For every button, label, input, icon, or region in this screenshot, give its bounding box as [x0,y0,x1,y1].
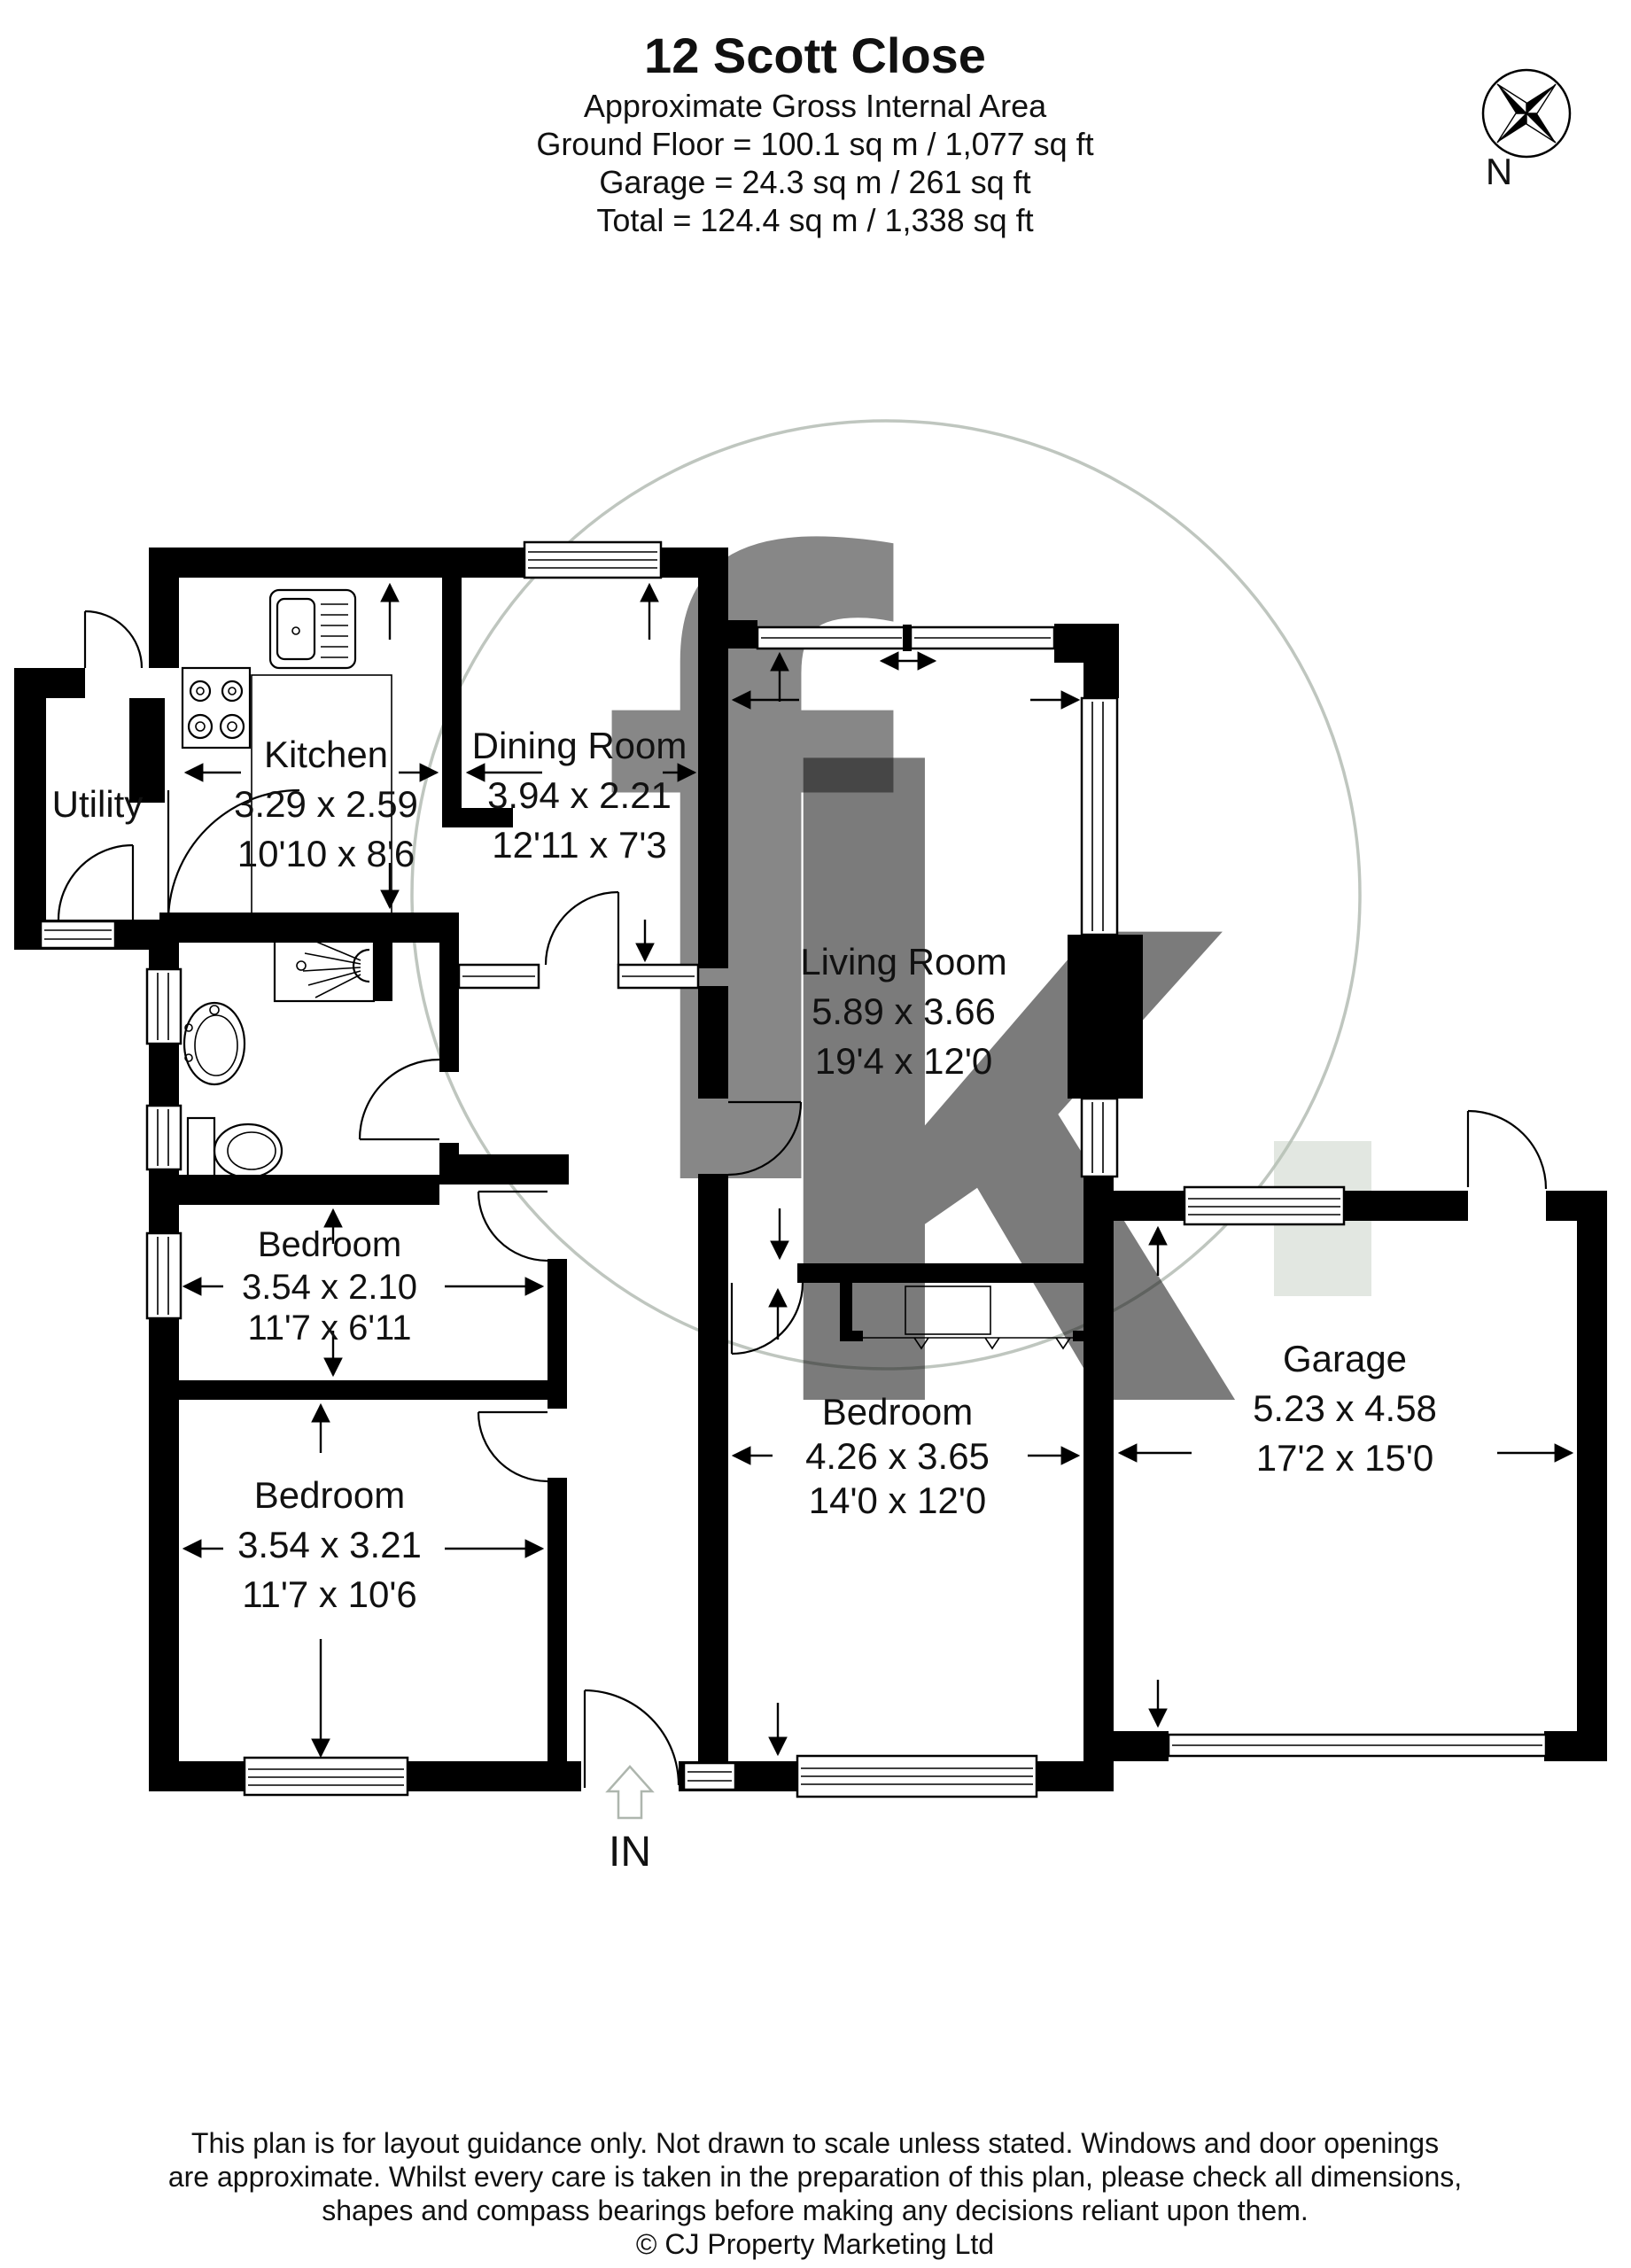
label-bedroom1-imperial: 11'7 x 6'11 [247,1309,411,1348]
compass-north-label: N [1486,151,1512,192]
label-bedroom3-imperial: 14'0 x 12'0 [809,1480,987,1521]
door-bathroom [360,1060,439,1139]
label-bedroom3: Bedroom [822,1391,973,1433]
door-bedroom2 [478,1412,548,1481]
disclaimer-line-2: are approximate. Whilst every care is ta… [168,2161,1462,2193]
disclaimer-line-3: shapes and compass bearings before makin… [322,2194,1309,2226]
window-bathroom-1 [147,969,181,1044]
label-garage-imperial: 17'2 x 15'0 [1256,1437,1434,1479]
toilet [188,1118,282,1184]
page-title: 12 Scott Close [644,27,986,83]
glazed-panel-right [618,965,698,988]
label-garage-metric: 5.23 x 4.58 [1253,1387,1437,1429]
label-bedroom1: Bedroom [258,1225,401,1264]
compass-star [1497,84,1556,143]
label-garage: Garage [1283,1338,1407,1379]
label-kitchen-metric: 3.29 x 2.59 [234,783,418,825]
kitchen-sink [270,590,355,668]
entrance-arrow-icon [608,1767,652,1818]
door-utility-internal [58,845,133,920]
kitchen-hob [183,668,250,748]
label-bedroom1-metric: 3.54 x 2.10 [242,1268,417,1307]
footer: This plan is for layout guidance only. N… [168,2127,1462,2260]
header-subtitle: Approximate Gross Internal Area [584,88,1047,124]
floorplan-page: f k 12 Scott Close Approximate Gross Int… [0,0,1631,2268]
compass-rose: N [1483,70,1570,192]
label-dining-metric: 3.94 x 2.21 [487,774,672,816]
door-bedroom1 [478,1192,548,1261]
window-bedroom2 [245,1758,408,1795]
label-kitchen: Kitchen [264,734,388,775]
entrance: IN [608,1767,652,1876]
label-dining-imperial: 12'11 x 7'3 [492,824,666,866]
label-bedroom3-metric: 4.26 x 3.65 [805,1435,990,1477]
window-living-right-lower [1082,1099,1117,1177]
window-bedroom3-bay [797,1756,1037,1797]
window-hall [684,1763,735,1790]
header: 12 Scott Close Approximate Gross Interna… [536,27,1093,238]
label-living: Living Room [800,941,1006,983]
entrance-label: IN [609,1829,651,1876]
label-kitchen-imperial: 10'10 x 8'6 [237,833,416,874]
label-bedroom2-imperial: 11'7 x 10'6 [242,1573,416,1615]
label-dining: Dining Room [472,725,687,766]
disclaimer-line-1: This plan is for layout guidance only. N… [191,2127,1439,2159]
area-garage: Garage = 24.3 sq m / 261 sq ft [599,164,1030,200]
door-garage-side [1468,1111,1546,1189]
garage-door [1169,1735,1546,1756]
label-living-imperial: 19'4 x 12'0 [815,1040,993,1082]
copyright: © CJ Property Marketing Ltd [636,2228,994,2260]
window-bathroom-2 [147,1106,181,1169]
door-entrance [585,1690,679,1788]
label-bedroom2: Bedroom [254,1474,405,1516]
floorplan-canvas: f k 12 Scott Close Approximate Gross Int… [0,0,1631,2268]
basin [184,1003,245,1084]
door-utility-external [85,611,142,668]
label-utility: Utility [52,783,144,825]
window-living-top [757,625,1054,651]
window-bedroom1 [147,1233,181,1318]
window-utility [41,921,115,948]
area-total: Total = 124.4 sq m / 1,338 sq ft [596,202,1033,238]
label-living-metric: 5.89 x 3.66 [812,990,996,1032]
glazed-panel-left [459,965,539,988]
window-living-right-upper [1082,698,1117,935]
window-garage [1184,1187,1344,1224]
window-dining [524,542,661,578]
area-ground-floor: Ground Floor = 100.1 sq m / 1,077 sq ft [536,126,1093,162]
label-bedroom2-metric: 3.54 x 3.21 [237,1524,422,1565]
